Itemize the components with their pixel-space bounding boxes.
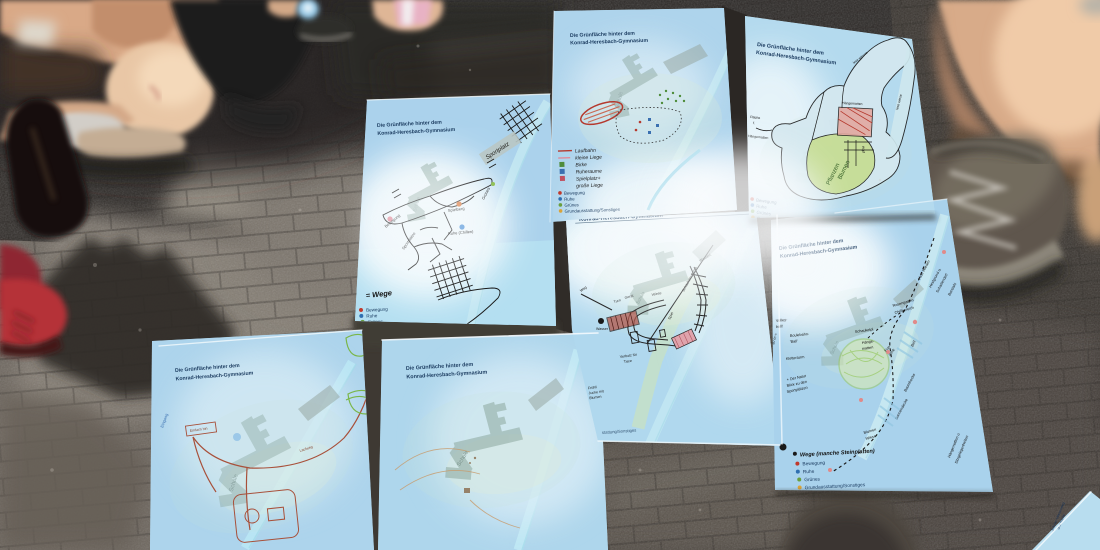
svg-text:Hüpf: Hüpf bbox=[861, 146, 866, 154]
svg-text:Bewegung: Bewegung bbox=[802, 460, 825, 467]
svg-text:Grünes: Grünes bbox=[804, 476, 821, 483]
svg-text:Wasser: Wasser bbox=[596, 327, 609, 331]
svg-text:Ruhe: Ruhe bbox=[564, 196, 575, 201]
svg-text:'Ball': 'Ball' bbox=[790, 339, 798, 344]
svg-text:Ruheraume: Ruheraume bbox=[576, 169, 603, 176]
svg-text:kleine Liege: kleine Liege bbox=[575, 155, 602, 162]
svg-text:Grünes: Grünes bbox=[564, 202, 579, 208]
svg-text:Ruhe: Ruhe bbox=[803, 469, 815, 476]
svg-text:Laufbahn: Laufbahn bbox=[575, 148, 596, 155]
svg-text:Ruhe: Ruhe bbox=[366, 313, 378, 319]
svg-text:Birke: Birke bbox=[575, 162, 587, 168]
svg-text:Spielplatz+: Spielplatz+ bbox=[576, 176, 601, 183]
svg-text:Bewegung: Bewegung bbox=[564, 190, 585, 196]
svg-text:große Liege: große Liege bbox=[576, 183, 603, 190]
